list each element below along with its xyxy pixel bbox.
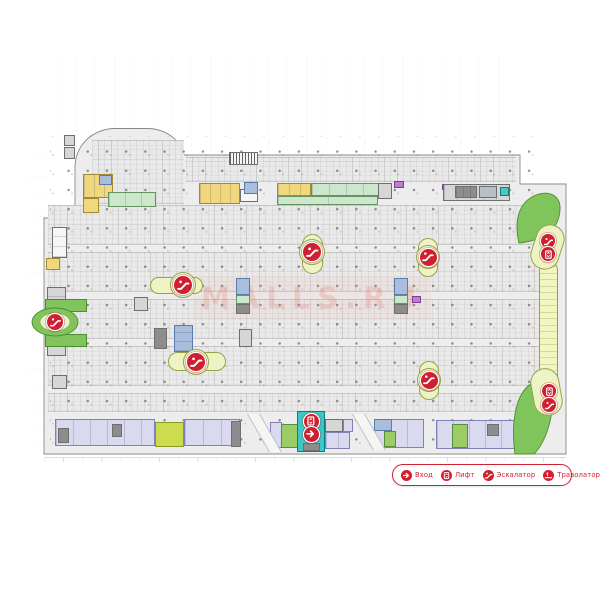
escalator-icon[interactable]: [541, 234, 555, 248]
lift-icon[interactable]: [541, 247, 555, 261]
escalator-icon[interactable]: [47, 314, 63, 330]
legend-item: Вход: [401, 470, 433, 481]
escalator-icon[interactable]: [421, 372, 438, 389]
floor-plan-canvas: MALLS.RU ВходЛифтЭскалаторТраволатор: [0, 0, 600, 600]
escalator-icon[interactable]: [420, 249, 437, 266]
escalator-icon[interactable]: [187, 353, 205, 371]
legend-label: Лифт: [455, 471, 475, 479]
lift-icon: [441, 470, 452, 481]
escalator-icon[interactable]: [303, 243, 321, 261]
legend-label: Эскалатор: [497, 471, 536, 479]
travolator-icon: [543, 470, 554, 481]
escalator-icon: [483, 470, 494, 481]
escalator-icon[interactable]: [174, 276, 192, 294]
entrance-icon: [401, 470, 412, 481]
lift-icon[interactable]: [542, 384, 556, 398]
map-legend: ВходЛифтЭскалаторТраволатор: [392, 464, 572, 486]
escalator-icon[interactable]: [542, 398, 556, 412]
legend-label: Траволатор: [557, 471, 600, 479]
landscaping-layer: [0, 0, 600, 600]
legend-label: Вход: [415, 471, 433, 479]
entrance-icon[interactable]: [304, 427, 319, 442]
legend-item: Траволатор: [543, 470, 600, 481]
legend-item: Эскалатор: [483, 470, 536, 481]
legend-item: Лифт: [441, 470, 475, 481]
